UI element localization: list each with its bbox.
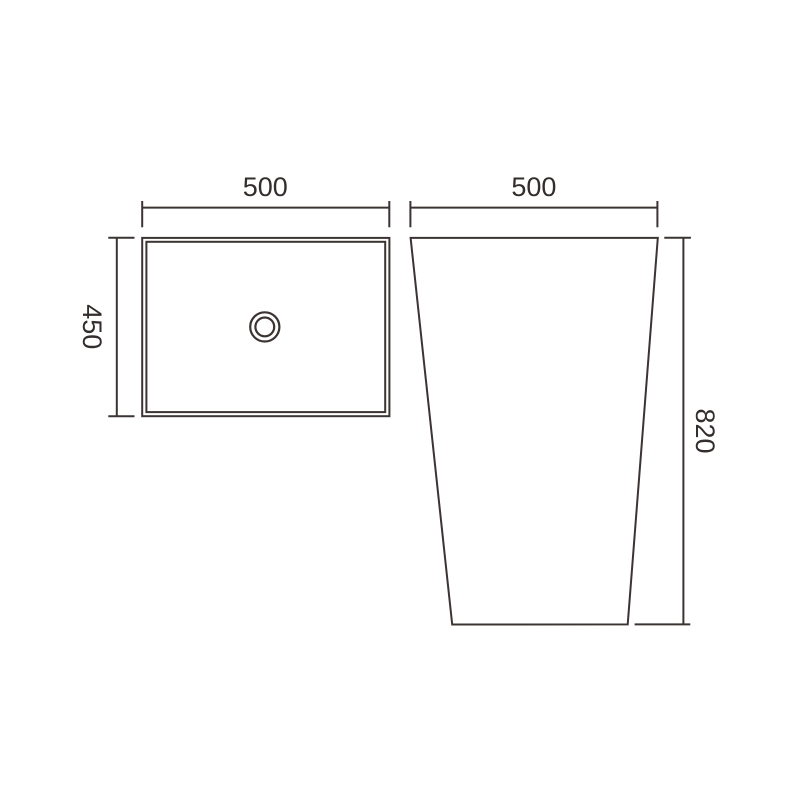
svg-text:820: 820 bbox=[690, 408, 720, 453]
svg-text:450: 450 bbox=[77, 304, 107, 349]
svg-text:500: 500 bbox=[243, 172, 288, 202]
svg-text:500: 500 bbox=[511, 172, 556, 202]
